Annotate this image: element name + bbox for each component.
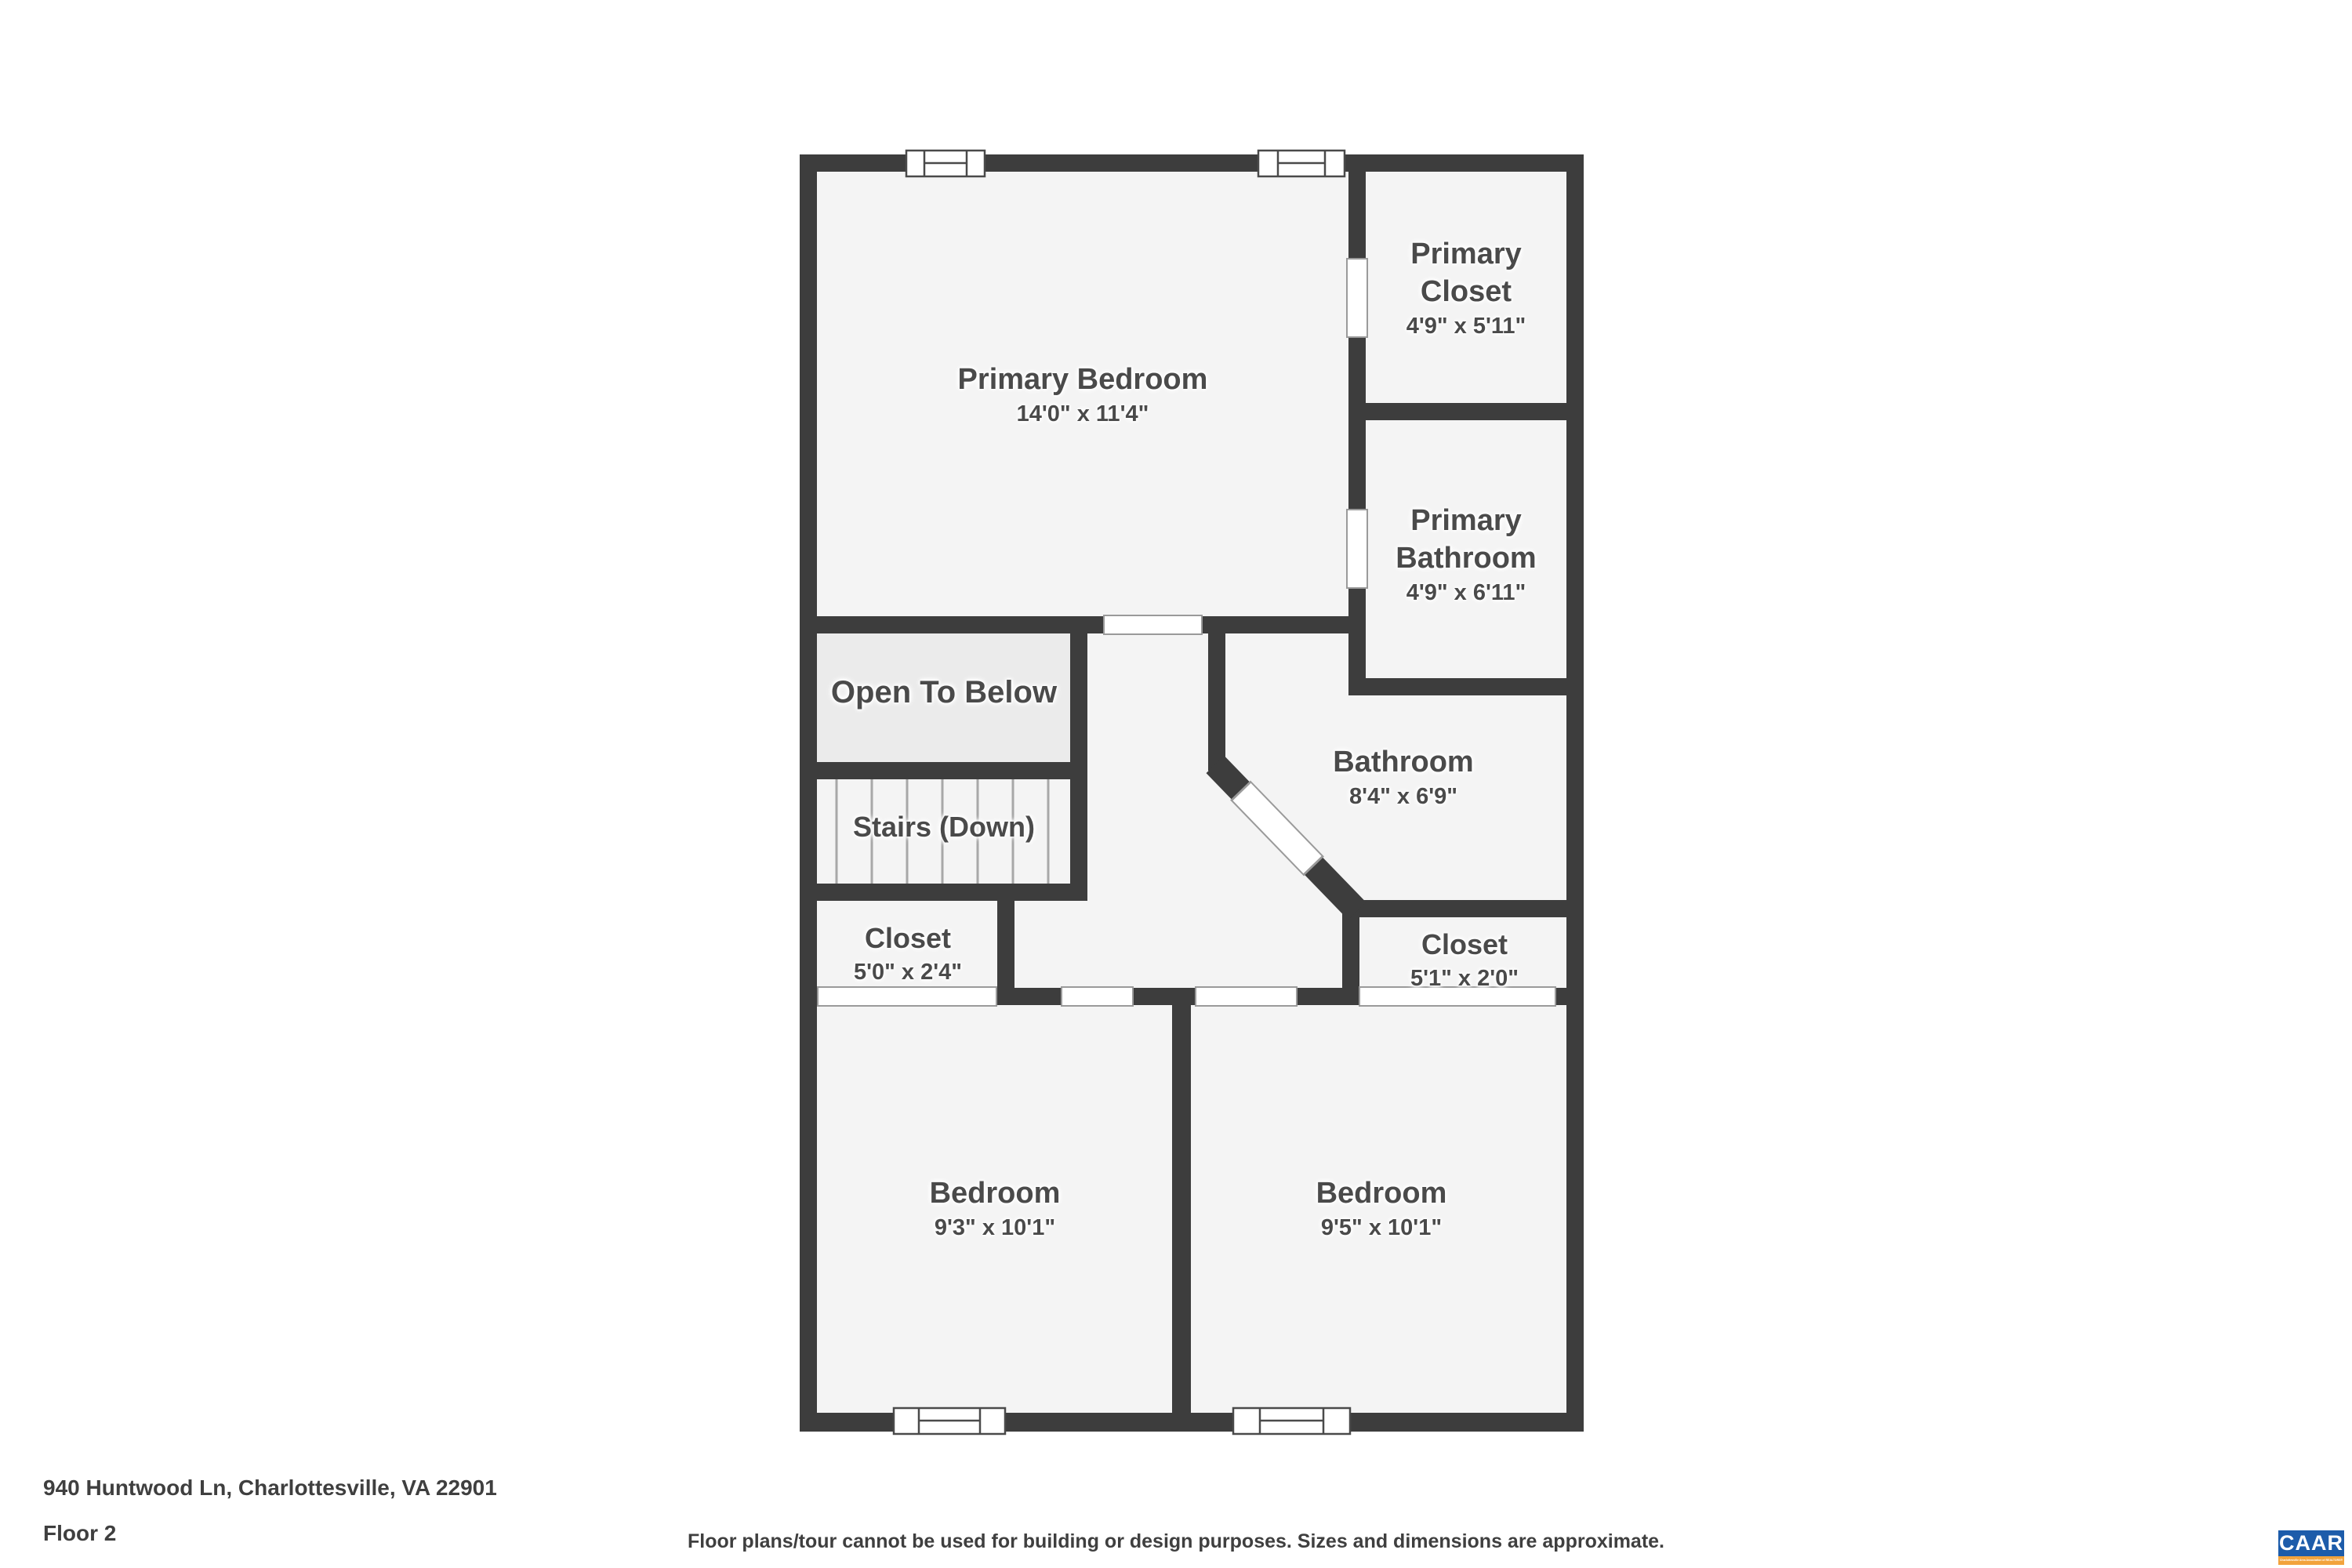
room-name: Closet [1410, 927, 1519, 963]
floor-plan-drawing [0, 0, 2352, 1568]
floor-plan-page: Primary Bedroom 14'0" x 11'4" Primary Cl… [0, 0, 2352, 1568]
room-name: Closet [854, 920, 962, 956]
room-name-line2: Closet [1406, 273, 1526, 310]
room-dims: 4'9" x 5'11" [1406, 310, 1526, 342]
room-name-line1: Primary [1406, 235, 1526, 273]
area-label-stairs: Stairs (Down) [853, 809, 1035, 845]
property-address: 940 Huntwood Ln, Charlottesville, VA 229… [43, 1475, 497, 1501]
window-bottom-right [1233, 1408, 1350, 1434]
room-dims: 9'5" x 10'1" [1316, 1212, 1447, 1243]
caar-logo: CAAR Charlottesville Area Association of… [2278, 1530, 2344, 1565]
closet-left-opening [818, 987, 996, 1006]
room-label-bathroom: Bathroom 8'4" x 6'9" [1333, 743, 1473, 812]
floor-label: Floor 2 [43, 1521, 116, 1546]
area-name: Open To Below [831, 673, 1057, 712]
primary-bathroom-door [1347, 510, 1367, 588]
bedroom-left-door [1062, 987, 1133, 1006]
primary-closet-door [1347, 259, 1367, 337]
window-top-left [906, 151, 985, 176]
room-dims: 8'4" x 6'9" [1333, 781, 1473, 812]
window-bottom-left [894, 1408, 1005, 1434]
room-label-primary-bathroom: Primary Bathroom 4'9" x 6'11" [1396, 502, 1536, 608]
room-dims: 4'9" x 6'11" [1396, 577, 1536, 608]
area-label-open-to-below: Open To Below [831, 673, 1057, 712]
room-dims: 9'3" x 10'1" [930, 1212, 1061, 1243]
disclaimer-text: Floor plans/tour cannot be used for buil… [688, 1530, 1664, 1553]
room-name-line1: Primary [1396, 502, 1536, 539]
room-label-primary-closet: Primary Closet 4'9" x 5'11" [1406, 235, 1526, 342]
caar-logo-text: CAAR [2278, 1531, 2344, 1555]
caar-logo-strip: Charlottesville Area Association of REAL… [2278, 1556, 2344, 1565]
room-dims: 5'1" x 2'0" [1410, 963, 1519, 994]
room-dims: 14'0" x 11'4" [958, 398, 1208, 430]
room-dims: 5'0" x 2'4" [854, 956, 962, 988]
room-label-primary-bedroom: Primary Bedroom 14'0" x 11'4" [958, 361, 1208, 430]
room-name-line2: Bathroom [1396, 539, 1536, 577]
room-label-bedroom-right: Bedroom 9'5" x 10'1" [1316, 1174, 1447, 1243]
room-name: Bedroom [930, 1174, 1061, 1212]
room-label-bedroom-left: Bedroom 9'3" x 10'1" [930, 1174, 1061, 1243]
caar-logo-tagline: Charlottesville Area Association of REAL… [2278, 1556, 2344, 1565]
primary-bedroom-door [1104, 615, 1202, 634]
bedroom-right-door [1196, 987, 1297, 1006]
room-name: Bedroom [1316, 1174, 1447, 1212]
room-label-closet-left: Closet 5'0" x 2'4" [854, 920, 962, 988]
room-label-closet-right: Closet 5'1" x 2'0" [1410, 927, 1519, 994]
window-top-right [1258, 151, 1345, 176]
room-name: Bathroom [1333, 743, 1473, 781]
area-name: Stairs (Down) [853, 809, 1035, 845]
room-name: Primary Bedroom [958, 361, 1208, 398]
